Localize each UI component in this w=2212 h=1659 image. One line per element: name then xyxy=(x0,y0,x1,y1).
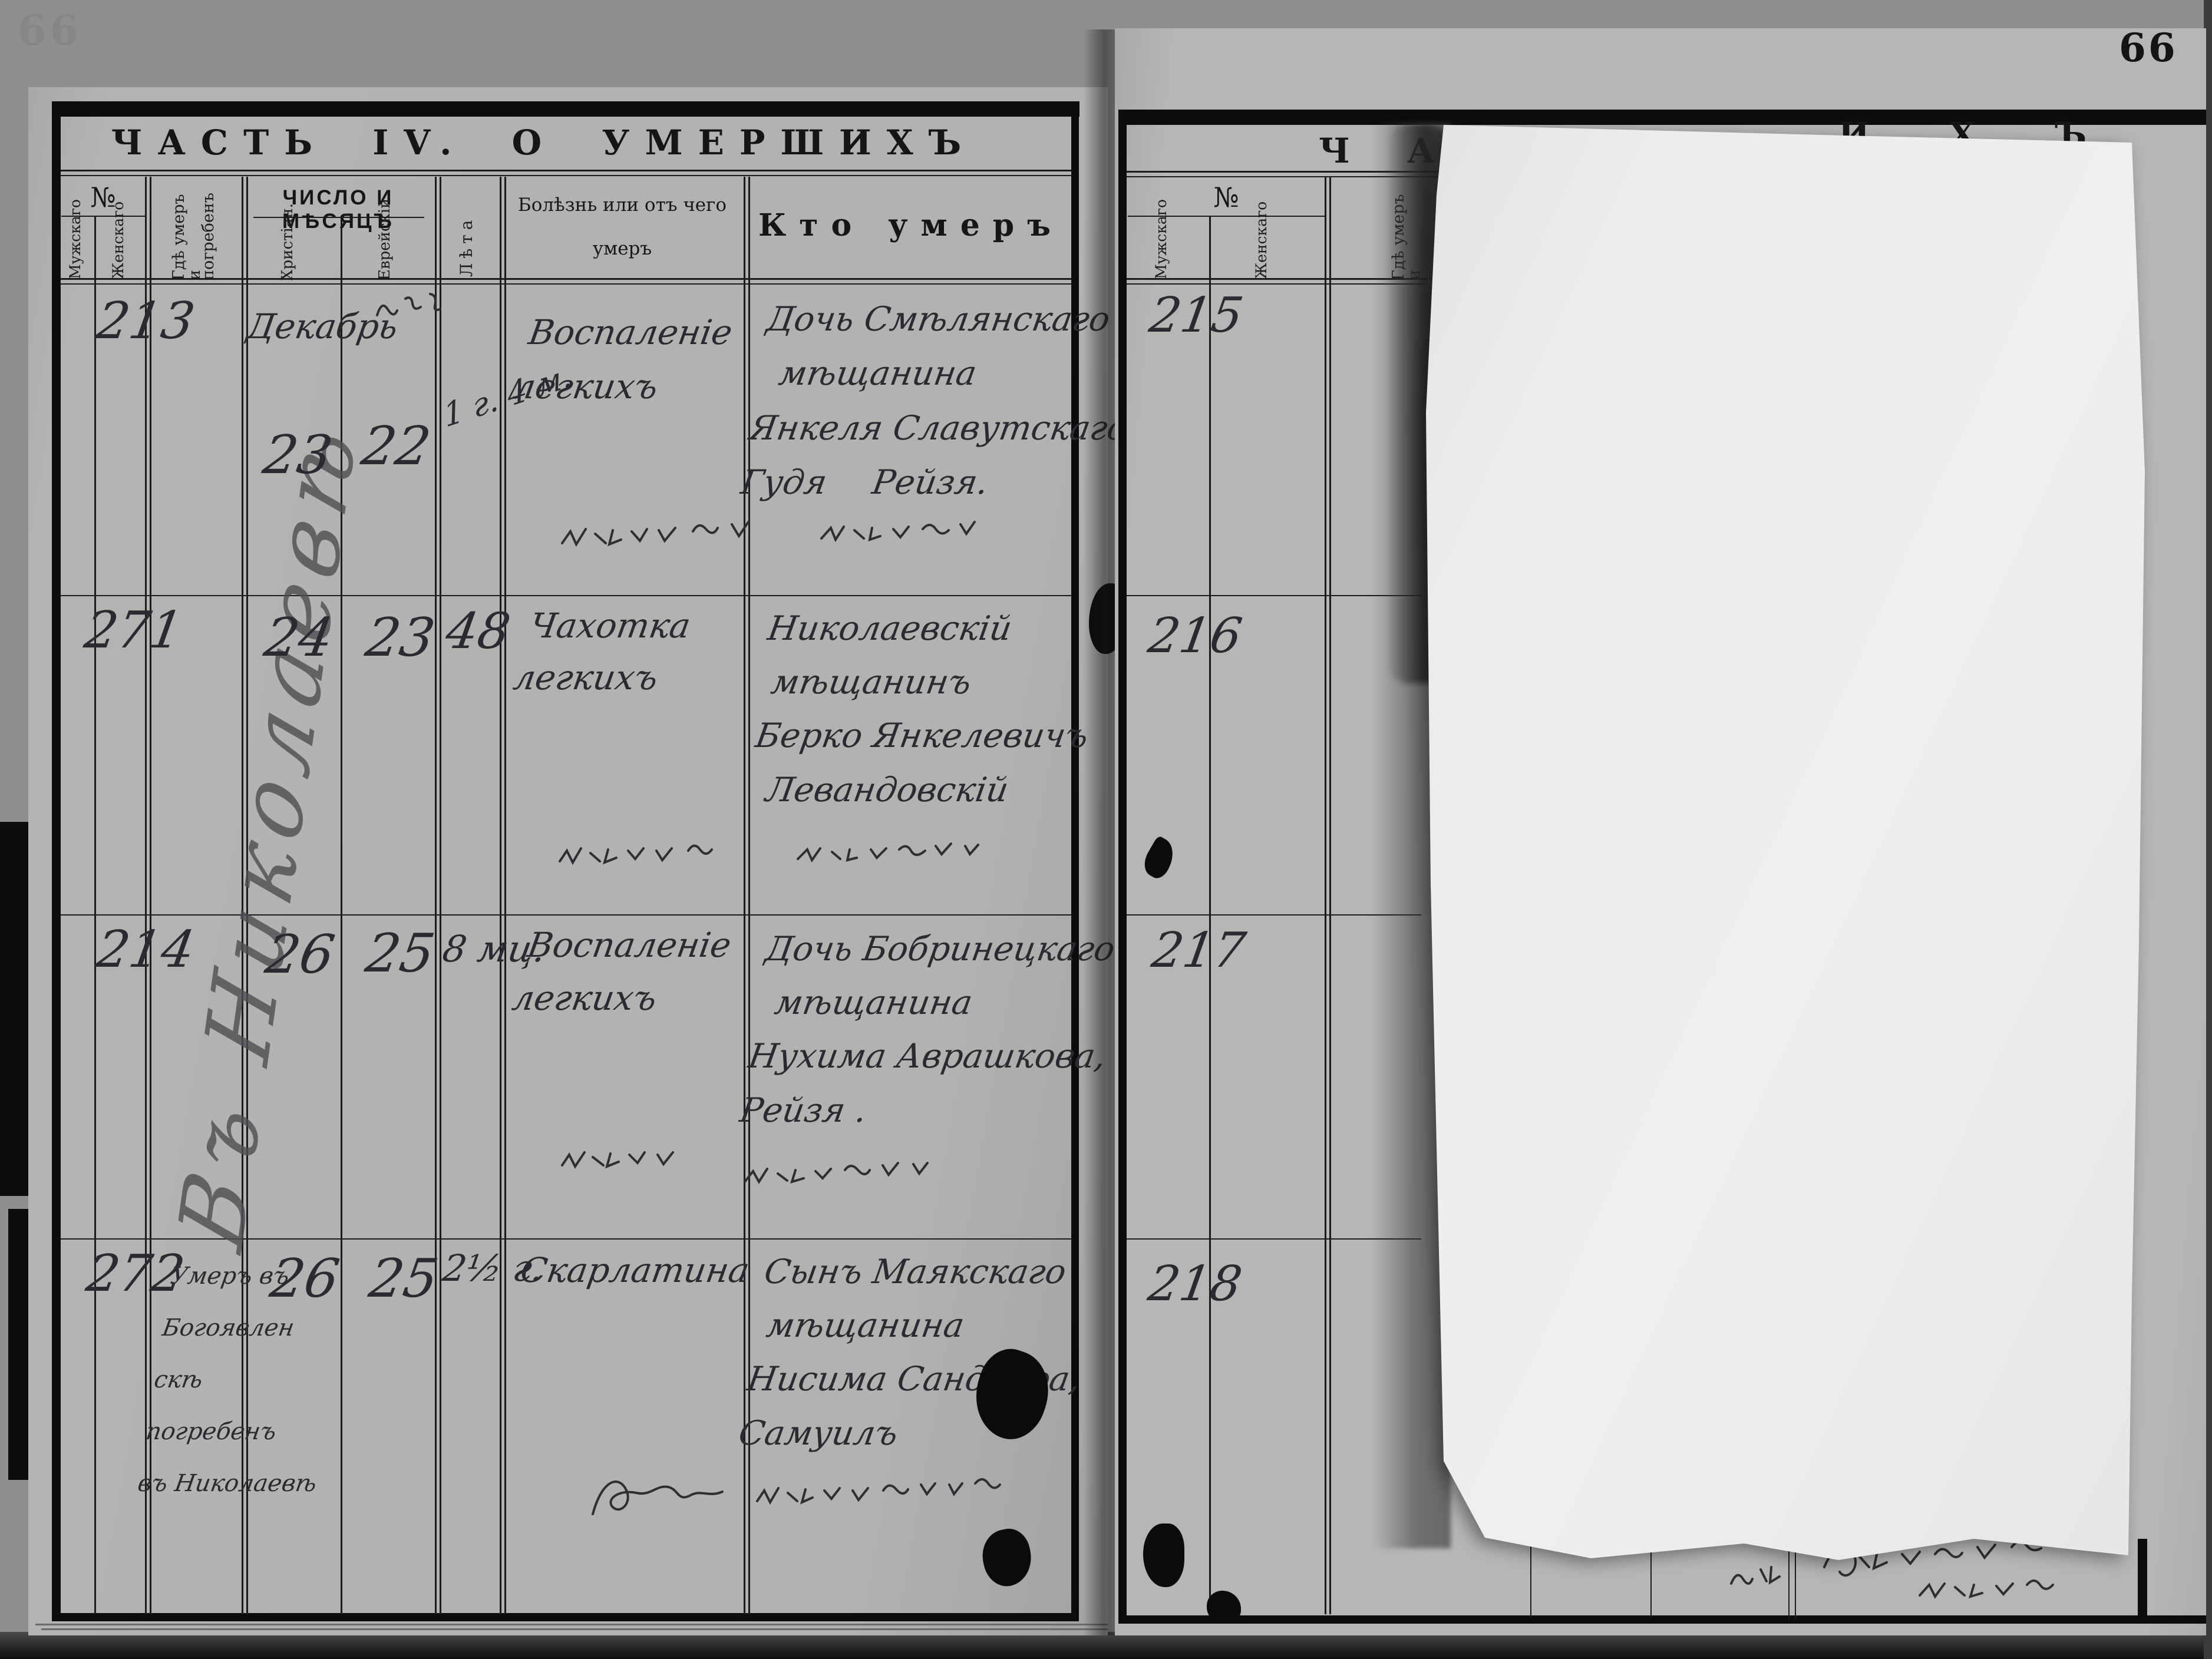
bottom-shadow-band xyxy=(0,1632,2212,1659)
col-header-date-group: ЧИСЛО И МѢСЯЦЪ xyxy=(246,186,430,233)
ink-blot-right-row4 xyxy=(1143,1523,1184,1587)
col-header-who: Кто умеръ xyxy=(752,207,1070,243)
left-table-bottom-border xyxy=(52,1613,1079,1621)
row2-number: 271 xyxy=(81,601,187,660)
row4-date-christian: 26 xyxy=(266,1248,344,1310)
right-table-bottom-border xyxy=(1118,1615,2206,1624)
row1-who-line4: Гудя Рейзя. xyxy=(737,455,1134,510)
row2-who: Николаевскій мѣщанинъ Берко Янкелевичъ Л… xyxy=(738,602,1109,817)
row3-date-christian: 26 xyxy=(262,924,339,986)
col-header-cause-line1: Болѣзнь или отъ чего xyxy=(504,194,740,216)
row2-cause-line1: Чахотка xyxy=(527,606,694,646)
right-row3-number: 217 xyxy=(1148,923,1249,979)
row2-age: 48 xyxy=(442,602,514,660)
row3-who-line1: Дочь Бобринецкаго xyxy=(761,923,1127,976)
overlay-shadow-wrap xyxy=(1411,121,2148,1564)
col-header-date-christian: Христіан. xyxy=(280,220,295,280)
col-header-place-line2: погребенъ xyxy=(200,189,216,280)
row1-hebrew-note-scribble xyxy=(550,508,1045,567)
row2-who-line4: Левандовскій xyxy=(738,764,1084,817)
col-header-male: Мужскаго xyxy=(68,220,82,279)
row2-hebrew-note-scribble xyxy=(550,829,1045,883)
right-col-header-male: Мужскаго xyxy=(1154,220,1168,279)
row2-who-line2: мѣщанинъ xyxy=(755,656,1101,709)
row4-place-line4: погребенъ xyxy=(142,1406,329,1458)
row2-date-christian: 24 xyxy=(260,607,338,669)
row3-cause-line1: Воспаленіе xyxy=(525,925,734,965)
row1-date-jewish: 22 xyxy=(358,415,435,477)
row2-who-line1: Николаевскій xyxy=(764,602,1109,656)
row4-place-line2: Богоявлен xyxy=(159,1302,345,1354)
row2-cause-line2: легкихъ xyxy=(511,657,661,698)
row4-who-line1: Сынъ Маякскаго xyxy=(760,1245,1101,1299)
row3-date-jewish: 25 xyxy=(362,923,439,984)
row1-jewish-month-scribble xyxy=(371,292,465,327)
col-header-cause-line2: умеръ xyxy=(504,238,740,259)
page-number: 66 xyxy=(2119,25,2178,71)
row4-place-line3: скѣ xyxy=(150,1354,337,1406)
left-page-title: ЧАСТЬ IV. О УМЕРШИХЪ xyxy=(61,123,1027,163)
row3-who-line2: мѣщанина xyxy=(753,976,1118,1030)
row2-who-line3: Берко Янкелевичъ xyxy=(747,709,1092,763)
row3-who: Дочь Бобринецкаго мѣщанина Нухима Аврашк… xyxy=(736,923,1127,1138)
row1-number: 213 xyxy=(93,292,199,351)
row4-cause: Скарлатина xyxy=(518,1250,752,1290)
row4-place-line5: въ Николаевѣ xyxy=(134,1458,321,1509)
row1-cause-line2: легкихъ xyxy=(511,366,661,407)
row4-who-line2: мѣщанина xyxy=(752,1299,1093,1353)
row3-number: 214 xyxy=(93,920,199,979)
right-row4-number: 218 xyxy=(1144,1256,1246,1312)
right-page-title-fragment-start: Ч xyxy=(1319,131,1365,171)
row4-date-jewish: 25 xyxy=(365,1248,443,1310)
right-table-left-border xyxy=(1118,110,1127,1621)
row1-date-christian: 23 xyxy=(259,424,336,486)
row3-hebrew-note-scribble xyxy=(550,1130,1034,1207)
left-table-top-border xyxy=(52,101,1079,117)
col-header-female: Женскаго xyxy=(111,220,126,279)
white-overlay-sheet xyxy=(1411,121,2148,1564)
row3-cause-line2: легкихъ xyxy=(510,978,660,1018)
row3-who-line3: Нухима Аврашкова, xyxy=(745,1030,1110,1083)
row4-hebrew-note-scribble xyxy=(748,1468,1078,1527)
right-row2-number: 216 xyxy=(1144,608,1246,664)
right-col-header-female: Женскаго xyxy=(1254,220,1269,279)
row2-date-jewish: 23 xyxy=(362,607,439,669)
row1-cause-line1: Воспаленіе xyxy=(526,312,735,352)
row4-clerk-signature-scribble xyxy=(586,1468,739,1527)
row4-who: Сынъ Маякскаго мѣщанина Нисима Сандлера,… xyxy=(735,1245,1101,1460)
ghost-page-number: 66 xyxy=(18,6,82,55)
left-table-left-border xyxy=(52,101,61,1621)
col-header-date-jewish: Еврейскій xyxy=(377,220,392,280)
col-header-place-line1: Гдѣ умеръ и xyxy=(171,180,203,280)
col-header-age: Лѣта xyxy=(458,194,475,277)
metrical-book-scan: 66 ЧАСТЬ IV. О УМЕРШИХЪ № Мужскаго Женск… xyxy=(0,0,2212,1659)
right-row1-number: 215 xyxy=(1145,287,1247,343)
